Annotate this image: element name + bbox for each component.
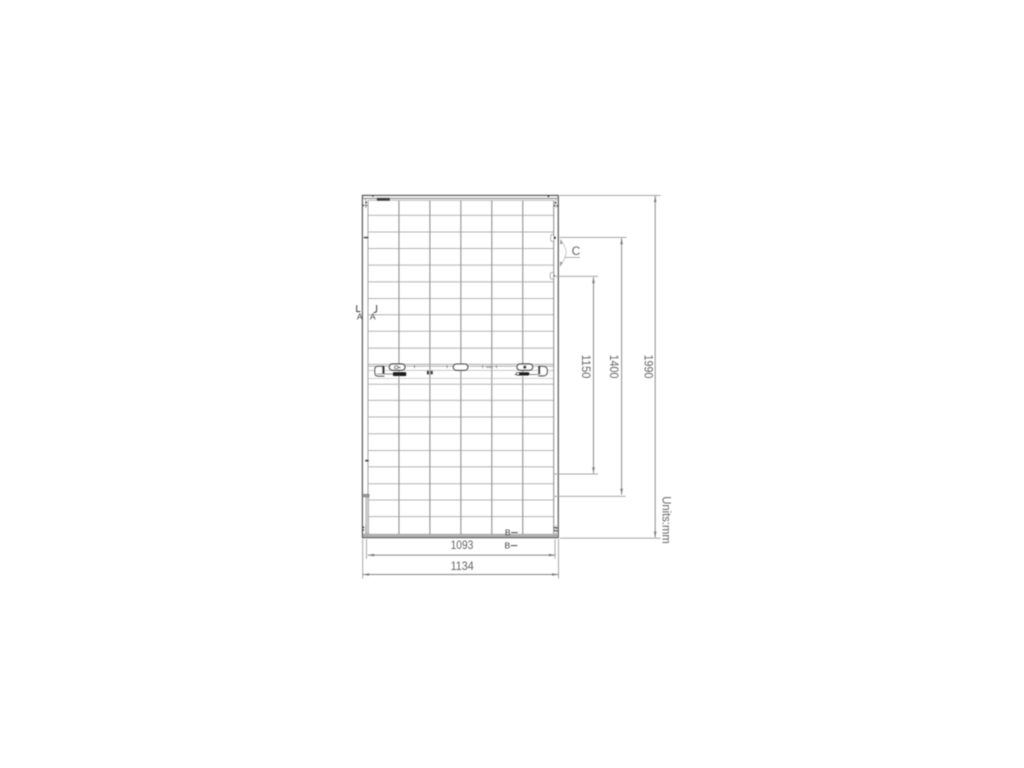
svg-text:B: B: [505, 527, 511, 537]
svg-text:1990: 1990: [642, 355, 656, 379]
svg-text:Units:mm: Units:mm: [660, 496, 674, 544]
svg-text:B: B: [505, 541, 511, 551]
svg-text:1150: 1150: [579, 355, 593, 379]
svg-text:1400: 1400: [607, 355, 621, 379]
svg-text:A: A: [357, 312, 363, 322]
svg-text:1134: 1134: [451, 559, 474, 573]
svg-text:C: C: [572, 244, 581, 258]
svg-text:A: A: [370, 312, 376, 322]
svg-text:1093: 1093: [451, 538, 474, 552]
